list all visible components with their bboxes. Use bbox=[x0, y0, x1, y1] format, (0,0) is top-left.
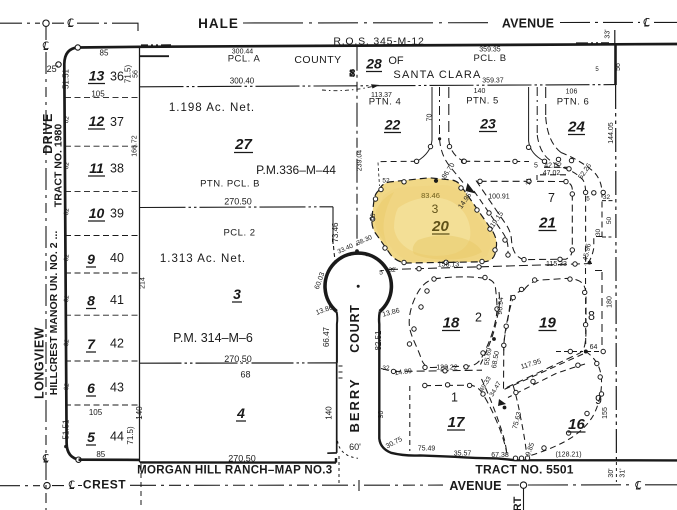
svg-text:1.313 Ac. Net.: 1.313 Ac. Net. bbox=[160, 253, 246, 265]
svg-text:HALE: HALE bbox=[198, 16, 239, 31]
svg-text:BERRY: BERRY bbox=[347, 377, 362, 432]
svg-text:4: 4 bbox=[236, 405, 245, 421]
svg-text:27: 27 bbox=[234, 136, 252, 153]
svg-text:166.72: 166.72 bbox=[132, 135, 139, 157]
svg-text:P.M. 314–M–6: P.M. 314–M–6 bbox=[173, 331, 253, 345]
svg-text:13: 13 bbox=[89, 68, 105, 84]
svg-text:7: 7 bbox=[87, 336, 96, 352]
svg-text:214: 214 bbox=[140, 277, 147, 289]
svg-text:6: 6 bbox=[87, 380, 95, 396]
svg-text:140: 140 bbox=[474, 88, 486, 95]
svg-text:RT: RT bbox=[512, 496, 524, 510]
svg-text:105: 105 bbox=[91, 90, 105, 99]
svg-text:24: 24 bbox=[567, 119, 585, 136]
svg-text:35.57: 35.57 bbox=[454, 451, 472, 458]
svg-text:COURT: COURT bbox=[348, 304, 362, 352]
svg-text:18: 18 bbox=[443, 315, 460, 332]
svg-text:PTN. PCL. B: PTN. PCL. B bbox=[200, 179, 260, 190]
svg-text:3: 3 bbox=[432, 202, 439, 216]
svg-text:51.51: 51.51 bbox=[62, 419, 71, 440]
svg-text:32: 32 bbox=[603, 194, 611, 201]
svg-text:TRACT NO. 5501: TRACT NO. 5501 bbox=[475, 463, 573, 477]
svg-text:56: 56 bbox=[133, 70, 140, 78]
svg-text:270.50: 270.50 bbox=[228, 454, 256, 464]
svg-text:28: 28 bbox=[365, 56, 382, 72]
svg-text:144.05: 144.05 bbox=[608, 122, 615, 144]
svg-text:23: 23 bbox=[479, 116, 496, 132]
svg-text:158.13: 158.13 bbox=[438, 262, 460, 269]
svg-text:25': 25' bbox=[47, 64, 59, 74]
svg-text:12: 12 bbox=[89, 113, 105, 129]
svg-text:SANTA CLARA: SANTA CLARA bbox=[393, 69, 481, 81]
svg-text:33': 33' bbox=[605, 29, 612, 38]
svg-text:106: 106 bbox=[566, 89, 578, 96]
svg-text:140: 140 bbox=[325, 406, 334, 420]
svg-text:359.37: 359.37 bbox=[482, 78, 504, 85]
svg-text:64: 64 bbox=[590, 344, 598, 351]
svg-text:270.50: 270.50 bbox=[224, 354, 252, 364]
svg-text:21: 21 bbox=[538, 215, 556, 232]
svg-text:71.5): 71.5) bbox=[126, 426, 135, 445]
svg-text:PTN. 4: PTN. 4 bbox=[369, 97, 402, 108]
svg-text:3: 3 bbox=[233, 286, 241, 302]
svg-text:PCL. 2: PCL. 2 bbox=[223, 228, 255, 239]
svg-text:39: 39 bbox=[110, 207, 124, 221]
svg-text:100.91: 100.91 bbox=[488, 194, 510, 201]
svg-text:140: 140 bbox=[135, 406, 144, 420]
svg-text:75.49: 75.49 bbox=[418, 446, 436, 453]
svg-text:85: 85 bbox=[100, 49, 109, 58]
svg-text:68: 68 bbox=[240, 370, 250, 380]
svg-text:30: 30 bbox=[595, 229, 602, 237]
svg-text:239.04: 239.04 bbox=[357, 150, 364, 172]
svg-text:83.46: 83.46 bbox=[421, 191, 440, 200]
svg-text:38: 38 bbox=[110, 162, 124, 176]
svg-text:1.198 Ac. Net.: 1.198 Ac. Net. bbox=[169, 102, 255, 114]
svg-text:11: 11 bbox=[89, 160, 104, 176]
svg-text:66.47: 66.47 bbox=[322, 326, 331, 347]
svg-text:5: 5 bbox=[379, 270, 383, 277]
svg-text:9: 9 bbox=[595, 393, 602, 407]
svg-text:31': 31' bbox=[620, 468, 627, 477]
svg-text:90: 90 bbox=[378, 411, 385, 419]
svg-text:36: 36 bbox=[110, 70, 124, 84]
svg-text:CREST: CREST bbox=[83, 478, 126, 492]
svg-text:17: 17 bbox=[448, 414, 465, 431]
svg-text:R.O.S. 345-M-12: R.O.S. 345-M-12 bbox=[333, 35, 424, 47]
svg-text:85: 85 bbox=[96, 450, 105, 459]
svg-text:(128.21): (128.21) bbox=[555, 452, 581, 459]
svg-text:32: 32 bbox=[388, 267, 396, 274]
svg-text:COUNTY: COUNTY bbox=[294, 54, 341, 66]
svg-text:5: 5 bbox=[534, 163, 538, 170]
svg-text:P.M.336–M–44: P.M.336–M–44 bbox=[256, 163, 336, 177]
svg-text:9: 9 bbox=[87, 251, 95, 267]
svg-text:300.40: 300.40 bbox=[230, 77, 255, 86]
svg-text:19: 19 bbox=[539, 315, 556, 332]
svg-text:PTN. 6: PTN. 6 bbox=[557, 97, 590, 108]
svg-text:42.02: 42.02 bbox=[544, 163, 562, 170]
svg-text:32: 32 bbox=[382, 365, 390, 372]
svg-text:42: 42 bbox=[110, 337, 124, 351]
svg-text:HILLCREST MANOR UN. NO. 2 ...: HILLCREST MANOR UN. NO. 2 ... bbox=[48, 231, 60, 396]
svg-text:67.38: 67.38 bbox=[491, 452, 509, 459]
svg-text:41: 41 bbox=[110, 293, 124, 307]
svg-text:22: 22 bbox=[384, 117, 401, 133]
svg-text:70: 70 bbox=[427, 114, 434, 122]
svg-text:155: 155 bbox=[602, 407, 609, 419]
svg-text:20: 20 bbox=[431, 218, 449, 235]
svg-text:43: 43 bbox=[110, 381, 124, 395]
svg-text:2: 2 bbox=[475, 311, 482, 325]
svg-text:7: 7 bbox=[548, 191, 555, 205]
svg-text:123.22: 123.22 bbox=[436, 365, 458, 372]
svg-text:56: 56 bbox=[615, 63, 622, 71]
svg-text:5: 5 bbox=[87, 429, 95, 445]
svg-text:56: 56 bbox=[350, 69, 357, 77]
svg-text:10: 10 bbox=[89, 205, 105, 221]
svg-text:8: 8 bbox=[588, 309, 595, 323]
svg-text:82.51: 82.51 bbox=[374, 330, 383, 351]
svg-text:PCL. B: PCL. B bbox=[473, 53, 506, 64]
svg-text:51.51: 51.51 bbox=[62, 68, 71, 89]
svg-text:1: 1 bbox=[451, 391, 458, 405]
svg-text:44: 44 bbox=[110, 430, 124, 444]
svg-text:50: 50 bbox=[606, 217, 613, 225]
svg-text:OF: OF bbox=[388, 55, 404, 67]
svg-text:71.5): 71.5) bbox=[124, 65, 133, 84]
svg-text:105: 105 bbox=[89, 408, 103, 417]
svg-text:47.02: 47.02 bbox=[543, 170, 561, 177]
svg-text:AVENUE: AVENUE bbox=[449, 479, 501, 493]
svg-text:37: 37 bbox=[110, 115, 124, 129]
svg-text:73.46: 73.46 bbox=[331, 222, 340, 243]
svg-text:52: 52 bbox=[382, 178, 390, 185]
svg-text:180: 180 bbox=[607, 296, 614, 308]
svg-text:MORGAN HILL RANCH–MAP NO.3: MORGAN HILL RANCH–MAP NO.3 bbox=[137, 465, 332, 477]
svg-text:31: 31 bbox=[525, 177, 533, 185]
svg-text:PCL. A: PCL. A bbox=[228, 54, 261, 65]
svg-text:30': 30' bbox=[608, 468, 615, 477]
svg-text:PTN. 5: PTN. 5 bbox=[466, 96, 499, 107]
svg-text:LONGVIEW: LONGVIEW bbox=[33, 327, 47, 399]
svg-text:60': 60' bbox=[349, 442, 361, 452]
svg-text:270.50: 270.50 bbox=[224, 197, 252, 207]
svg-text:16: 16 bbox=[568, 416, 585, 433]
svg-text:115.33: 115.33 bbox=[546, 261, 567, 268]
svg-text:AVENUE: AVENUE bbox=[502, 17, 554, 31]
svg-text:8: 8 bbox=[87, 293, 95, 309]
svg-text:40: 40 bbox=[110, 251, 124, 265]
